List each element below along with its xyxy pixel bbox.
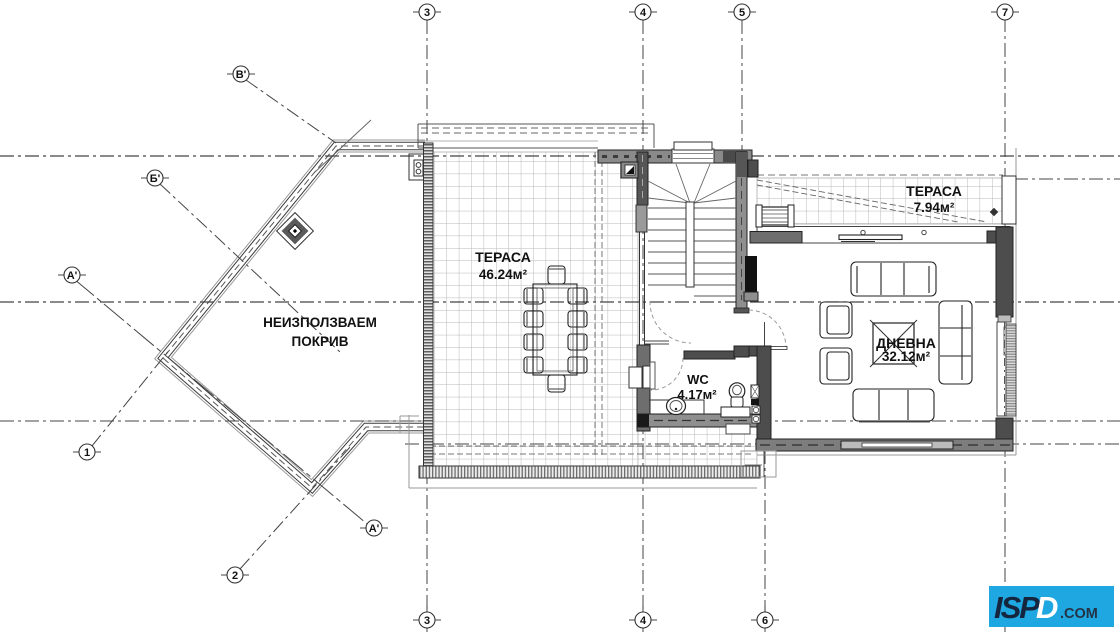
svg-text:4: 4 (640, 7, 647, 19)
svg-text:6: 6 (762, 615, 768, 627)
svg-text:Б': Б' (150, 173, 161, 185)
svg-text:ТЕРАСА: ТЕРАСА (475, 249, 531, 265)
svg-text:В': В' (236, 69, 247, 81)
svg-text:4.17м²: 4.17м² (677, 387, 717, 402)
svg-text:D: D (1036, 590, 1058, 625)
svg-text:1: 1 (84, 447, 90, 459)
svg-text:ПОКРИВ: ПОКРИВ (292, 334, 349, 349)
svg-text:2: 2 (232, 570, 238, 582)
svg-text:32.12м²: 32.12м² (882, 349, 931, 364)
svg-text:7.94м²: 7.94м² (914, 200, 955, 215)
svg-text:НЕИЗПОЛЗВАЕМ: НЕИЗПОЛЗВАЕМ (263, 315, 377, 330)
svg-text:7: 7 (1002, 7, 1008, 19)
svg-text:3: 3 (424, 615, 430, 627)
svg-text:5: 5 (739, 7, 745, 19)
svg-text:4: 4 (640, 615, 647, 627)
svg-text:ISP: ISP (994, 590, 1040, 625)
svg-text:А': А' (67, 270, 78, 282)
svg-text:ТЕРАСА: ТЕРАСА (906, 183, 962, 199)
svg-text:46.24м²: 46.24м² (479, 267, 528, 282)
svg-text:.COM: .COM (1060, 606, 1098, 622)
svg-text:3: 3 (424, 7, 430, 19)
svg-text:А': А' (369, 523, 380, 535)
svg-text:WC: WC (687, 372, 709, 387)
